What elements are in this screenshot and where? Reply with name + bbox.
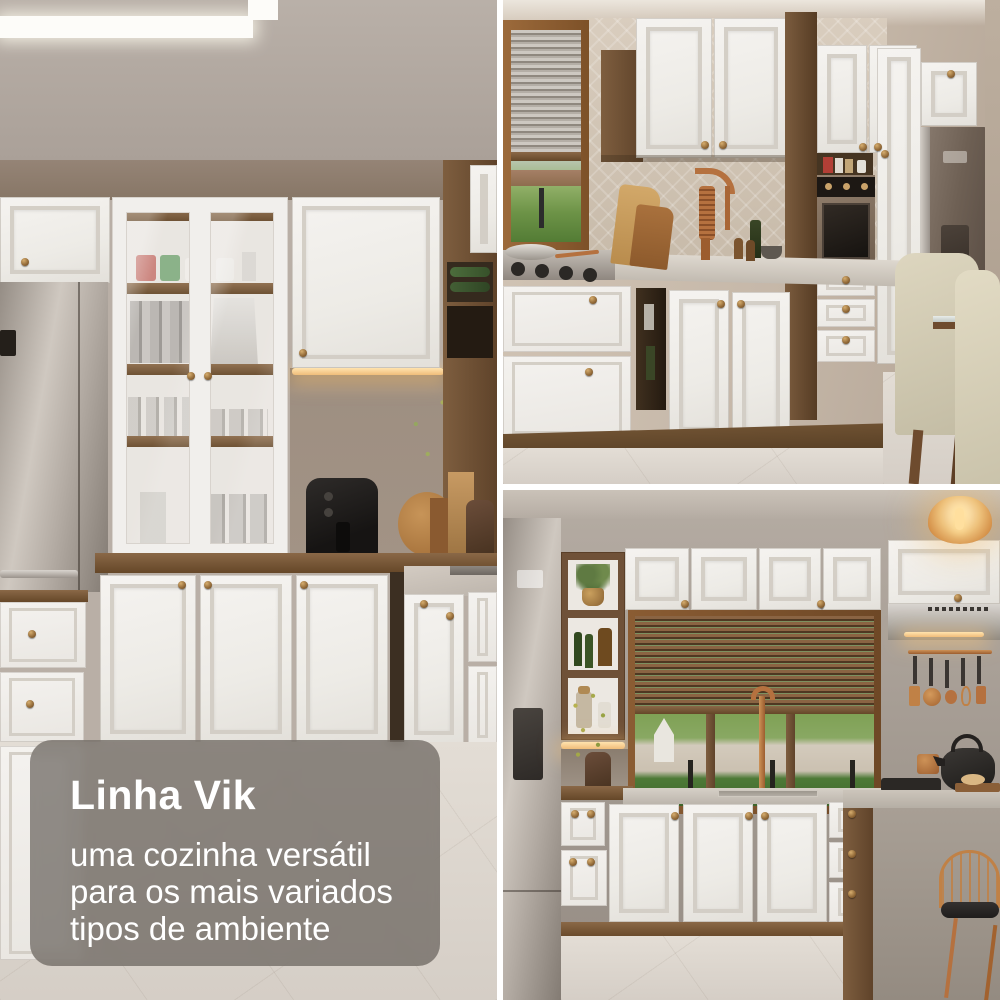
cabinet-knob: [587, 810, 595, 818]
copper-faucet: [759, 696, 765, 792]
hood-light: [904, 632, 984, 637]
base-drawer: [468, 666, 497, 744]
oven-tower-drawer: [817, 299, 875, 327]
cabinet-knob: [681, 600, 689, 608]
brown-vase: [466, 500, 494, 558]
cutting-board-dark: [629, 204, 674, 270]
copper-skimmer: [923, 688, 941, 706]
base-cabinet-door: [669, 290, 729, 440]
island-wood-side: [843, 808, 873, 1000]
mortar-bowl: [761, 246, 782, 259]
base-cabinet-door: [683, 804, 753, 922]
cabinet-knob: [848, 890, 856, 898]
oven-dials: [825, 183, 832, 190]
dark-cubby: [447, 306, 493, 358]
pepper-mills: [734, 238, 743, 259]
corner-base-door: [404, 594, 464, 744]
window-frame: [628, 610, 881, 814]
photo-left-kitchen: Linha Vik uma cozinha versátil para os m…: [0, 0, 497, 1000]
cabinet-knob: [859, 143, 867, 151]
bread: [961, 774, 985, 785]
pendant-light: [928, 496, 992, 544]
island-drawer: [0, 672, 84, 742]
upper-cabinet-door: [759, 548, 821, 610]
window-mullion: [511, 152, 581, 161]
brick-wall-glimpse: [511, 170, 581, 186]
caption-card: Linha Vik uma cozinha versátil para os m…: [30, 740, 440, 966]
cabinet-knob: [585, 368, 593, 376]
amber-bottle: [598, 628, 612, 666]
cabinet-knob: [446, 612, 454, 620]
cabinet-knob: [842, 336, 850, 344]
corner-shadow: [390, 572, 404, 744]
green-bottles: [574, 632, 582, 666]
floor: [561, 936, 871, 1000]
cabinet-knob: [26, 700, 34, 708]
sink: [718, 790, 818, 797]
potted-plant: [576, 564, 610, 590]
window-frame: [503, 20, 589, 252]
photo-bottom-right-kitchen: [503, 490, 1000, 1000]
upper-cabinet-door: [817, 45, 867, 153]
cabinet-knob: [745, 812, 753, 820]
cabinet-knob: [737, 300, 745, 308]
cabinet-knob: [300, 581, 308, 589]
book: [835, 158, 843, 173]
hutch-glass-door-right: [200, 202, 284, 554]
freezer-handle: [0, 570, 78, 578]
cabinet-knob: [719, 141, 727, 149]
wine-bottle: [450, 282, 490, 292]
cabinet-knob: [954, 594, 962, 602]
cabinet-knob: [717, 300, 725, 308]
copper-spring-faucet: [699, 186, 715, 240]
cooktop: [503, 250, 615, 280]
corner-drawer: [561, 802, 605, 846]
base-cabinet-door: [757, 804, 827, 922]
brass-pot: [582, 588, 604, 606]
cabinet-knob: [21, 258, 29, 266]
spice-jar: [644, 304, 654, 330]
fridge-door-gap: [78, 282, 80, 592]
copper-bar-stool-back: [939, 850, 1000, 908]
cabinet-knob: [187, 372, 195, 380]
cabinet-knob: [569, 858, 577, 866]
spatula: [909, 686, 920, 706]
cabinet-knob: [842, 276, 850, 284]
window-latch: [539, 188, 544, 228]
base-drawer: [503, 286, 631, 352]
air-fryer: [306, 478, 378, 558]
utensil-rail: [908, 650, 992, 654]
upper-cabinet-door: [292, 197, 440, 368]
cabinet-knob: [874, 143, 882, 151]
island-wood-top: [0, 590, 88, 602]
cabinet-knob: [571, 810, 579, 818]
cabinet-knob: [28, 630, 36, 638]
wine-cubby: [447, 262, 493, 302]
fridge-dispenser: [513, 708, 543, 780]
base-drawer: [503, 356, 631, 440]
oven-glass: [822, 203, 870, 259]
window-blinds: [511, 30, 581, 158]
shelf-cubby: [568, 560, 618, 610]
upper-cabinet-door: [823, 548, 881, 610]
base-cabinet-door: [609, 804, 679, 922]
spice-bottle: [646, 346, 655, 380]
oven-tower-drawer: [817, 330, 875, 362]
shelf-niche: [817, 153, 873, 175]
cabinet-knob: [947, 70, 955, 78]
freezer-gap: [503, 890, 561, 892]
island-top: [843, 790, 1000, 810]
whisk: [961, 686, 971, 706]
turner: [976, 686, 986, 704]
cabinet-knob: [842, 305, 850, 313]
base-cabinet-door: [100, 575, 196, 743]
cabinet-knob: [589, 296, 597, 304]
dining-chair-front: [955, 270, 1000, 484]
corner-cabinet-door: [470, 165, 497, 253]
utensil-handles: [913, 656, 917, 684]
upper-cabinet-door: [636, 18, 712, 158]
wine-bottle: [450, 267, 490, 277]
air-fryer-dials: [324, 492, 333, 501]
spice-pullout: [636, 288, 666, 410]
jar: [857, 160, 866, 173]
photo-top-right-kitchen: [503, 0, 1000, 484]
recessed-light-strip-return: [248, 0, 278, 20]
sink: [450, 566, 497, 575]
ceiling: [503, 490, 1000, 520]
upper-cabinet-over-hood: [888, 540, 1000, 604]
cabinet-knob: [420, 600, 428, 608]
under-cabinet-light: [292, 368, 444, 375]
base-cabinet-door: [200, 575, 292, 743]
book: [823, 157, 833, 173]
shelf-cubby: [568, 618, 618, 670]
cabinet-knob: [587, 858, 595, 866]
pan-handle: [555, 250, 599, 259]
collage: Linha Vik uma cozinha versátil para os m…: [0, 0, 1000, 1000]
faucet-stem: [701, 238, 710, 260]
cabinet-knob: [761, 812, 769, 820]
air-fryer-handle: [336, 522, 350, 552]
window-latches: [688, 760, 693, 790]
built-in-oven: [817, 175, 875, 267]
range-hood: [888, 604, 1000, 640]
olive-oil-bottle: [750, 220, 761, 258]
cabinet-knob: [848, 850, 856, 858]
steel-pan: [505, 244, 557, 260]
ladle: [945, 690, 957, 704]
faucet-spout: [725, 186, 730, 230]
stool-seat: [941, 902, 999, 918]
bulb-filament: [955, 508, 964, 530]
island-drawer: [0, 602, 86, 668]
cabinet-knob: [299, 349, 307, 357]
blind-bottom-rail: [635, 706, 874, 714]
cabinet-underside-shadow: [601, 155, 791, 162]
corner-drawer: [561, 850, 607, 906]
cabinet-knob: [178, 581, 186, 589]
upper-cabinet-over-fridge: [0, 197, 110, 283]
caption-title: Linha Vik: [70, 774, 412, 817]
fridge-display: [0, 330, 16, 356]
base-cabinet-door: [296, 575, 388, 743]
upper-cabinet-door: [691, 548, 757, 610]
fridge-badge: [943, 151, 967, 163]
cabinet-knob: [204, 372, 212, 380]
fridge-badge: [517, 570, 543, 588]
caption-subtitle: uma cozinha versátil para os mais variad…: [70, 837, 422, 948]
upper-cabinet-door: [625, 548, 689, 610]
cabinet-knob: [671, 812, 679, 820]
cabinet-knob: [848, 810, 856, 818]
refrigerator: [0, 282, 108, 592]
cabinet-knob: [881, 150, 889, 158]
cabinet-knob: [817, 600, 825, 608]
base-drawer: [468, 592, 497, 662]
cabinet-knob: [701, 141, 709, 149]
cabinet-knob: [204, 581, 212, 589]
base-cabinet-door: [732, 292, 790, 440]
book: [845, 159, 853, 173]
hood-vents: [928, 607, 990, 611]
upper-cabinet-door: [714, 18, 788, 158]
burner-grates: [511, 262, 525, 276]
wall-band: [0, 160, 497, 200]
glass-hutch: [112, 197, 288, 563]
recessed-light-strip: [0, 16, 253, 38]
refrigerator: [503, 518, 561, 1000]
